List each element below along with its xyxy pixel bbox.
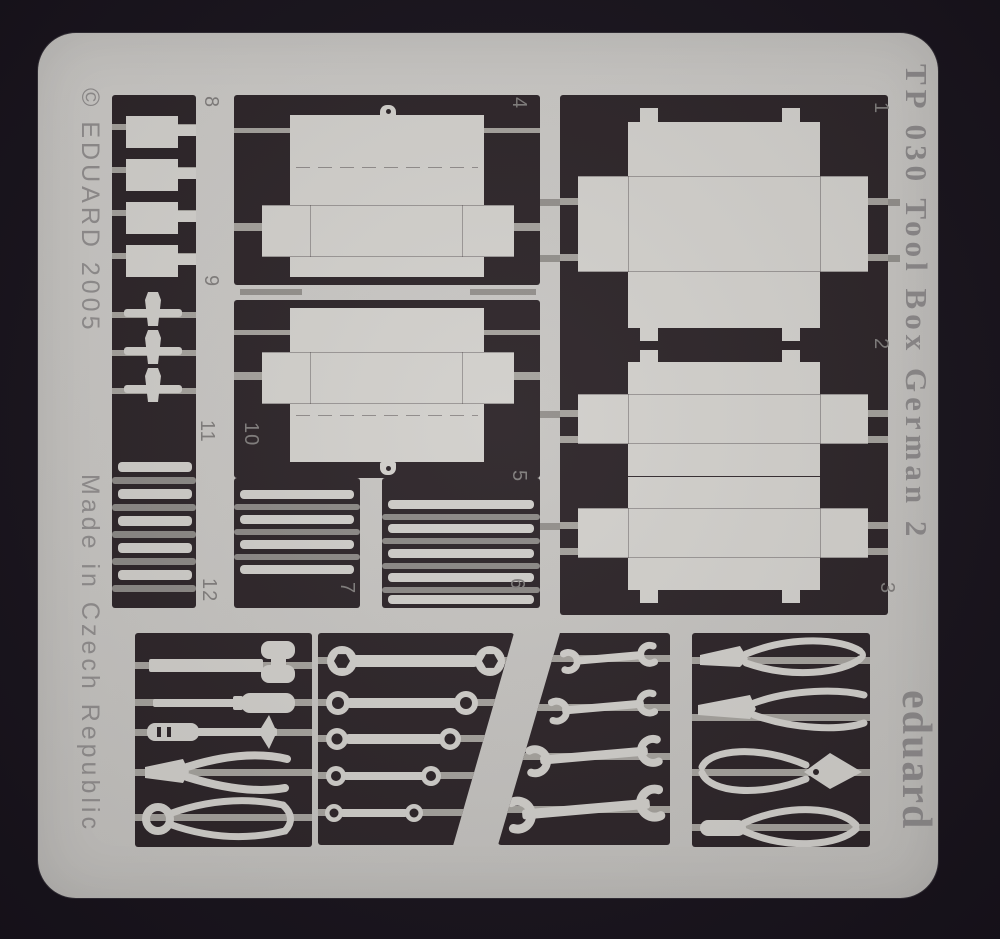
part-8-label: 8 [199,96,222,108]
hammer-silhouette [149,641,295,683]
part-7-label: 7 [335,582,358,594]
half-etch-strip [234,554,360,560]
part-4-panel [234,95,540,285]
part-12-strip [118,570,192,580]
part-4-label: 4 [507,97,530,109]
ring-wrench-silhouette [325,804,423,822]
hinge-tab [380,462,396,475]
part-1-body-band [578,176,868,272]
part-7-strip [240,565,354,574]
product-code-text: TP 030 Tool Box German 2 [898,64,934,541]
open-end-wrench-silhouette [563,645,654,671]
part-12-strip [118,516,192,526]
photo-of-photoetch-fret: © EDUARD 2005 Made in Czech Republic TP … [0,0,1000,939]
part-2-label: 2 [869,338,892,350]
half-etch-stub [540,411,560,418]
fold-line [462,205,463,257]
part-12-label: 12 [197,578,220,602]
part-5-label: 5 [507,470,530,482]
half-etch-stub [888,255,900,262]
part-3-flap [628,558,820,590]
corner-tab [640,328,658,341]
part-11-strip [118,462,192,472]
fold-line [262,205,514,206]
part-5-side-flap [262,352,292,404]
part-11-label: 11 [195,420,218,443]
half-etch-strip [112,477,196,484]
part-7-strip [240,540,354,549]
half-etch-stub [470,289,536,295]
half-etch-stub [540,523,560,530]
fold-line [578,394,868,395]
half-etch-strip [382,514,540,520]
part-5-panel [234,300,540,478]
part-6-label: 6 [505,578,528,590]
part-5-toolbox-tray [290,308,484,462]
fold-line [820,394,821,444]
half-etch-strip [382,563,540,569]
half-etch-strip [112,504,196,511]
half-etch-stub [540,199,560,206]
part-6-strip [388,549,534,558]
ring-wrench-silhouette [326,766,441,786]
corner-tab [640,108,658,123]
screwdriver-silhouette [153,693,295,713]
part-6-strip [388,524,534,533]
fold-line [578,508,868,509]
corner-tab [782,328,800,341]
fold-line [262,352,514,353]
part-4-side-flap [484,205,514,257]
fold-line [578,176,868,177]
fold-line [310,205,311,257]
part-5-side-flap [484,352,514,404]
corner-tab [782,108,800,123]
part-10-label: 10 [239,422,262,446]
corner-tab [782,590,800,603]
half-etch-bars [135,662,312,821]
half-etch-stub [888,199,900,206]
part-1-label: 1 [869,102,892,114]
fold-line [820,508,821,558]
right-parts-panel [560,95,888,615]
part-3-label: 3 [875,582,898,594]
part-2-flap [628,362,820,394]
fold-line [628,508,629,558]
half-etch-stub [240,289,302,295]
fold-line [578,271,868,272]
open-end-wrench-silhouette [511,789,661,830]
part-4-toolbox-tray [290,115,484,277]
half-etch-strip [112,558,196,565]
flat-pliers-silhouette [700,641,863,673]
fold-line [462,352,463,404]
open-end-wrench-silhouette [551,693,654,722]
open-end-wrench-silhouette [529,739,659,774]
copyright-text: © EDUARD 2005 [75,88,104,334]
half-etch-strip [234,529,360,535]
ring-wrench-silhouette [327,646,505,676]
part-3-body [628,477,820,508]
tool-panel-hand-tools [135,633,312,847]
half-etch-strip [234,504,360,510]
ring-wrench-silhouette [326,728,461,750]
screwdriver-silhouette [147,715,277,749]
half-etch-bars [692,657,870,831]
tool-panel-pliers [692,633,870,847]
part-2-band [578,394,868,444]
part-3-band [578,508,868,558]
fold-line [262,403,514,404]
fold-line [628,394,629,444]
part-4-side-flap [262,205,292,257]
half-etch-bar [234,330,294,335]
part-1-bottom-flap [628,272,820,328]
long-nose-pliers-silhouette [698,691,864,727]
half-etch-bar [482,128,540,133]
part-12-strip [118,543,192,553]
fold-line [820,176,821,272]
part-9-label: 9 [199,275,222,287]
origin-text: Made in Czech Republic [75,474,104,833]
half-etch-stub [540,255,560,262]
half-etch-bar [234,128,294,133]
part-6-strip [388,500,534,509]
brand-logo-text: eduard [892,690,940,830]
part-7-strip [240,515,354,524]
part-1-top-flap [628,122,820,176]
left-parts-panel [112,95,196,608]
fold-line [578,443,868,444]
fold-line [262,256,514,257]
part-11-strip [118,489,192,499]
half-etch-strip [112,531,196,538]
fold-line [296,415,478,416]
part-6-strip [388,595,534,604]
fold-line [628,176,629,272]
ring-wrench-silhouette [326,691,478,715]
half-etch-strip [382,538,540,544]
half-etch-strip [112,585,196,592]
corner-tab [640,590,658,603]
fold-line [578,557,868,558]
part-2-body [628,444,820,476]
fold-line [296,167,478,168]
part-7-strip [240,490,354,499]
fold-line [310,352,311,404]
half-etch-bar [482,330,540,335]
